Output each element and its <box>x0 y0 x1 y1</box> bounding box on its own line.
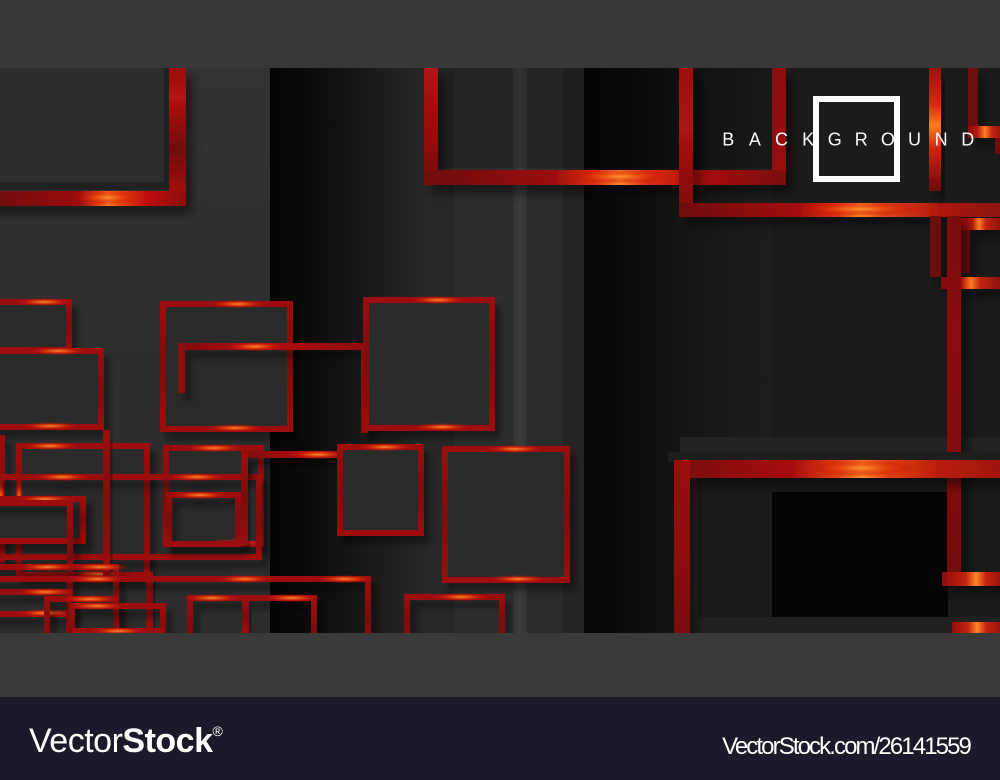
svg-text:D: D <box>961 130 974 150</box>
svg-text:C: C <box>775 130 788 150</box>
svg-text:G: G <box>828 130 842 150</box>
svg-text:O: O <box>881 130 895 150</box>
svg-text:B: B <box>722 130 734 150</box>
svg-text:R: R <box>855 130 868 150</box>
svg-text:N: N <box>935 130 948 150</box>
svg-text:A: A <box>749 130 761 150</box>
svg-text:K: K <box>802 130 814 150</box>
svg-text:U: U <box>908 130 921 150</box>
